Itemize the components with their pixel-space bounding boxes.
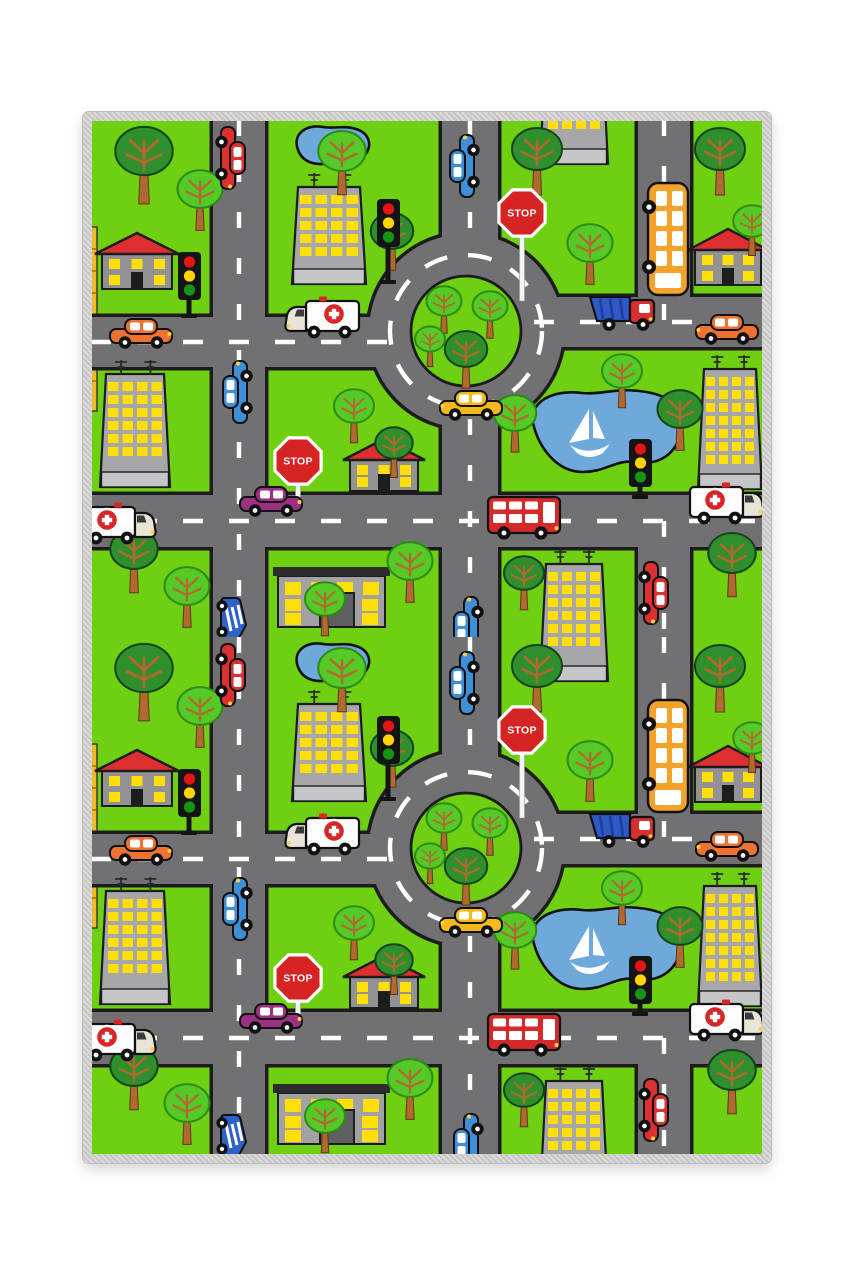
play-rug: STOPSTOP: [83, 112, 771, 1163]
product-photo: STOPSTOP: [0, 0, 853, 1280]
rug-pattern: STOPSTOP: [92, 121, 762, 1154]
